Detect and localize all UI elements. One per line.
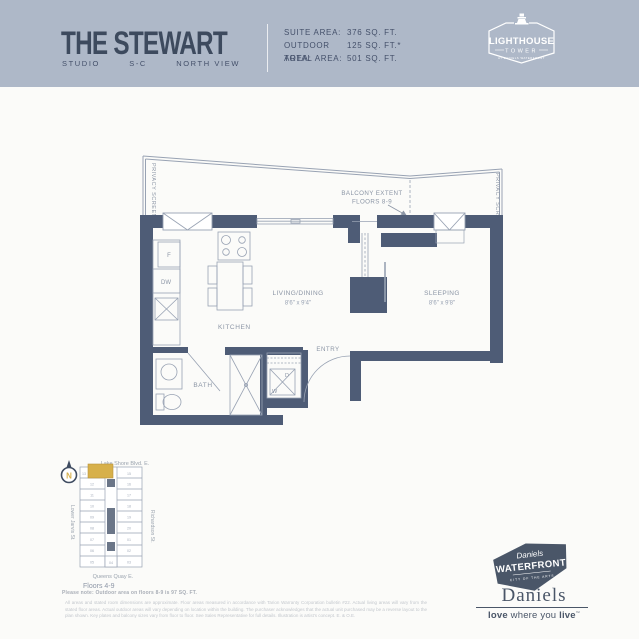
svg-text:12: 12 [90, 483, 94, 487]
header-divider [267, 24, 268, 72]
suite-type: STUDIO [62, 59, 100, 68]
svg-text:13: 13 [82, 472, 86, 476]
outdoor-area-note: Please note: Outdoor area on floors 8-9 … [62, 590, 197, 596]
privacy-screen-left-label: PRIVACY SCREEN [150, 163, 156, 218]
fridge-label: F [167, 253, 171, 259]
svg-text:03: 03 [127, 561, 131, 565]
suite-view: NORTH VIEW [176, 59, 240, 68]
svg-text:07: 07 [90, 538, 94, 542]
entry-label: ENTRY [316, 346, 339, 353]
stat-row: TOTAL AREA: 501 SQ. FT. [284, 52, 401, 65]
balcony-extent-arrow [388, 205, 407, 216]
north-compass-icon: N [62, 460, 77, 483]
street-right-label: Richardson St. [149, 510, 155, 543]
page-title: THE STEWART [61, 25, 227, 62]
svg-text:06: 06 [90, 549, 94, 553]
stat-value: 376 SQ. FT. [347, 26, 397, 39]
floor-plan: PRIVACY SCREEN PRIVACY SCREEN BALCONY EX… [125, 145, 515, 435]
svg-text:19: 19 [127, 516, 131, 520]
bath-label: BATH [193, 382, 212, 389]
cooktop [218, 232, 250, 260]
stat-value: 501 SQ. FT. [347, 52, 397, 65]
lighthouse-icon [515, 14, 529, 25]
balcony-outline [143, 156, 502, 215]
dryer-label: D [285, 373, 289, 379]
badge-title: LIGHTHOUSE [489, 36, 554, 47]
living-label: LIVING/DINING [272, 290, 323, 297]
stat-label: SUITE AREA: [284, 26, 347, 39]
svg-text:02: 02 [127, 549, 131, 553]
svg-text:05: 05 [90, 561, 94, 565]
dishwasher-label: DW [161, 280, 171, 286]
stat-label: OUTDOOR AREA: [284, 39, 347, 52]
key-map: N Lake Shore Blvd. E. [55, 452, 170, 592]
balcony-extent-label-2: FLOORS 8-9 [352, 199, 392, 206]
tagline-live: live [559, 610, 576, 621]
svg-text:18: 18 [127, 505, 131, 509]
suite-subtitle: STUDIO S-C NORTH VIEW [62, 59, 240, 68]
stat-label: TOTAL AREA: [284, 52, 347, 65]
floors-label: Floors 4-9 [83, 583, 115, 590]
lighthouse-tower-badge: LIGHTHOUSE TOWER AT DANIELS WATERFRONT [484, 12, 559, 74]
glazing-panel [257, 219, 333, 225]
tagline-tm: ™ [576, 610, 580, 615]
daniels-tagline: love where you live™ [454, 610, 614, 621]
street-left-label: Lower Jarvis St. [69, 505, 75, 541]
svg-text:15: 15 [127, 472, 131, 476]
window-left [163, 213, 212, 230]
living-dims: 8'6" x 9'4" [285, 301, 311, 307]
badge-subtitle: TOWER [505, 49, 538, 55]
highlighted-unit [88, 464, 113, 478]
kitchen-label: KITCHEN [218, 324, 251, 331]
stat-value: 125 SQ. FT.* [347, 39, 401, 52]
badge-tiny-text: AT DANIELS WATERFRONT [498, 56, 545, 60]
wordmark-rule [476, 607, 588, 608]
daniels-wordmark: Daniels [454, 585, 614, 607]
floorplan-sheet: THE STEWART STUDIO S-C NORTH VIEW SUITE … [0, 0, 639, 639]
area-stats: SUITE AREA: 376 SQ. FT. OUTDOOR AREA: 12… [284, 26, 401, 65]
tagline-love: love [488, 610, 508, 621]
street-bottom-label: Queens Quay E. [93, 574, 134, 580]
walls [140, 215, 503, 425]
tagline-mid: where you [508, 610, 559, 621]
svg-text:01: 01 [127, 538, 131, 542]
svg-text:16: 16 [127, 483, 131, 487]
svg-text:11: 11 [90, 494, 94, 498]
header: THE STEWART STUDIO S-C NORTH VIEW SUITE … [0, 0, 639, 87]
svg-text:10: 10 [90, 505, 94, 509]
svg-text:17: 17 [127, 494, 131, 498]
washer-label: W [272, 389, 278, 395]
svg-text:08: 08 [90, 527, 94, 531]
entry-door-swing [304, 356, 350, 402]
dining-table [208, 262, 252, 310]
stat-row: SUITE AREA: 376 SQ. FT. [284, 26, 401, 39]
svg-text:09: 09 [90, 516, 94, 520]
window-sill [436, 230, 464, 243]
sleeping-dims: 8'6" x 9'8" [429, 301, 455, 307]
balcony-extent-label-1: BALCONY EXTENT [341, 190, 402, 197]
stat-row: OUTDOOR AREA: 125 SQ. FT.* [284, 39, 401, 52]
legal-disclaimer: All areas and stated room dimensions are… [65, 600, 427, 620]
svg-text:04: 04 [109, 561, 113, 565]
window-right [434, 213, 465, 230]
sleeping-label: SLEEPING [424, 290, 460, 297]
north-label: N [66, 472, 72, 481]
suite-code: S-C [129, 59, 147, 68]
svg-text:20: 20 [127, 527, 131, 531]
